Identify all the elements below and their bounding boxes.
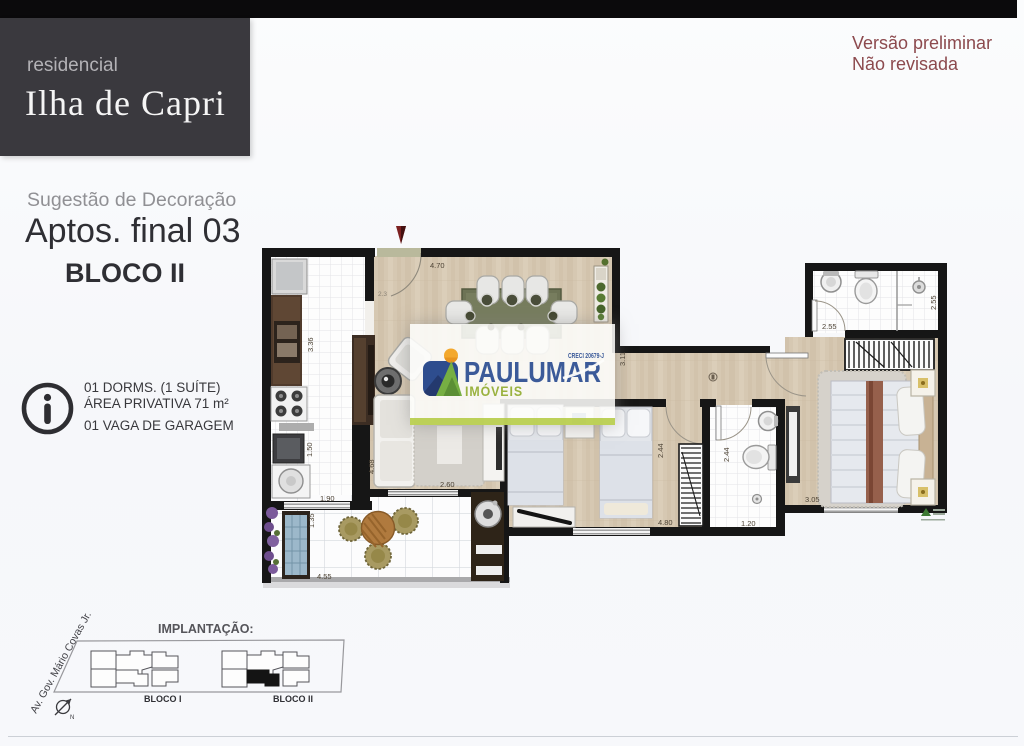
svg-text:2.44: 2.44	[656, 443, 665, 458]
svg-text:N: N	[70, 715, 74, 721]
svg-text:2.55: 2.55	[822, 322, 837, 331]
svg-text:4.70: 4.70	[430, 261, 445, 270]
svg-text:IMÓVEIS: IMÓVEIS	[465, 384, 523, 399]
svg-text:1.20: 1.20	[741, 519, 756, 528]
svg-text:3.11: 3.11	[618, 352, 627, 366]
svg-text:Av. Gov. Mário Covas Jr.: Av. Gov. Mário Covas Jr.	[28, 610, 94, 716]
svg-text:BLOCO I: BLOCO I	[144, 694, 182, 704]
svg-text:4.80: 4.80	[658, 518, 673, 527]
svg-text:4.68: 4.68	[367, 459, 376, 474]
svg-text:2.60: 2.60	[440, 480, 455, 489]
svg-text:3.05: 3.05	[805, 495, 820, 504]
svg-text:1.50: 1.50	[305, 442, 314, 457]
svg-text:2.55: 2.55	[929, 295, 938, 310]
svg-text:IMPLANTAÇÃO:: IMPLANTAÇÃO:	[158, 621, 254, 636]
svg-text:CRECI 20679-J: CRECI 20679-J	[568, 353, 604, 360]
svg-text:3.36: 3.36	[306, 337, 315, 352]
svg-text:1.90: 1.90	[320, 494, 335, 503]
svg-text:BLOCO II: BLOCO II	[273, 694, 313, 704]
svg-text:1.35: 1.35	[307, 513, 316, 528]
svg-text:4.55: 4.55	[317, 572, 332, 581]
svg-text:2.3: 2.3	[378, 291, 387, 298]
svg-text:2.44: 2.44	[722, 447, 731, 462]
